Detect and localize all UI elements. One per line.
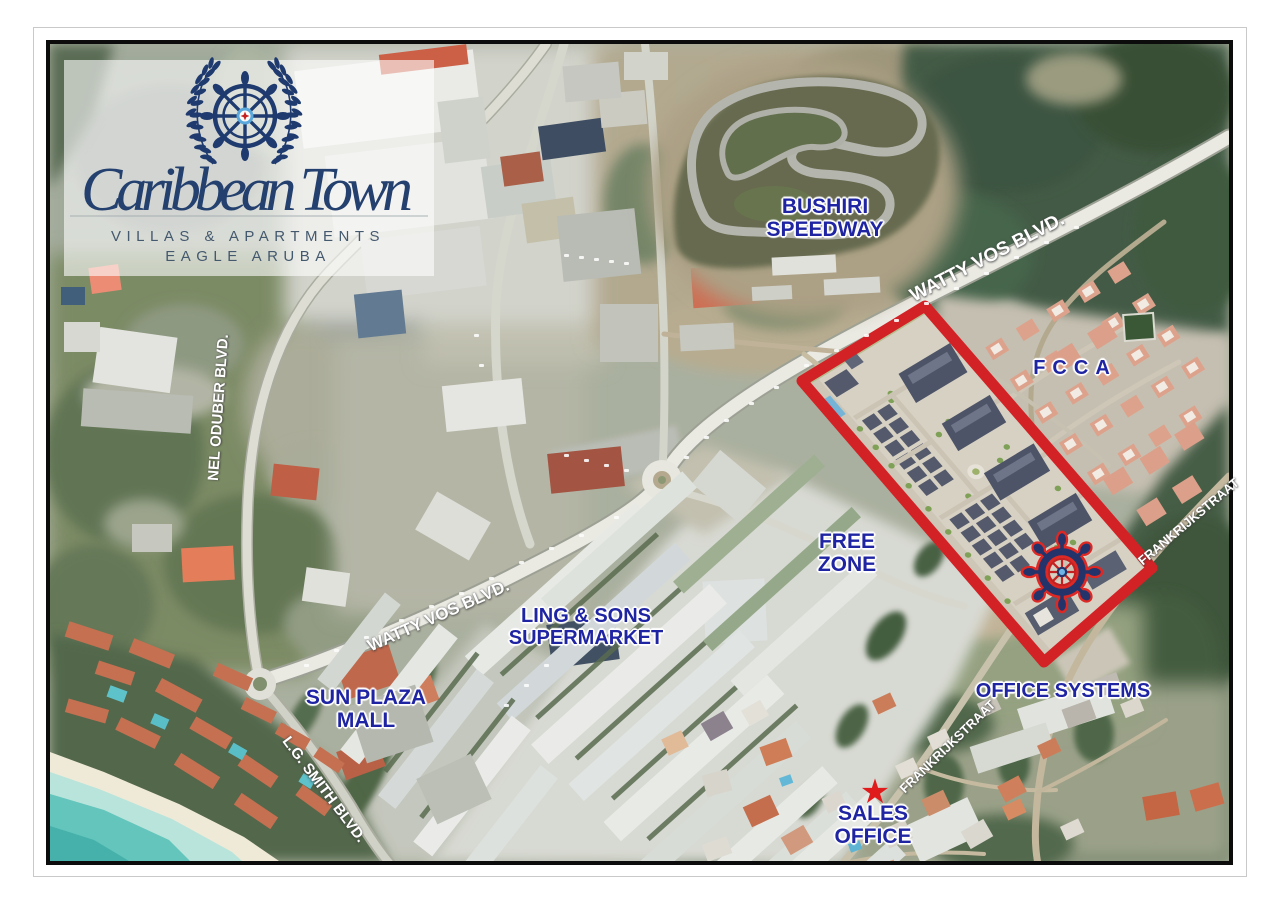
svg-text:Caribbean Town: Caribbean Town bbox=[81, 156, 413, 224]
svg-text:VILLAS & APARTMENTS: VILLAS & APARTMENTS bbox=[111, 228, 385, 245]
svg-text:EAGLE ARUBA: EAGLE ARUBA bbox=[165, 248, 331, 265]
